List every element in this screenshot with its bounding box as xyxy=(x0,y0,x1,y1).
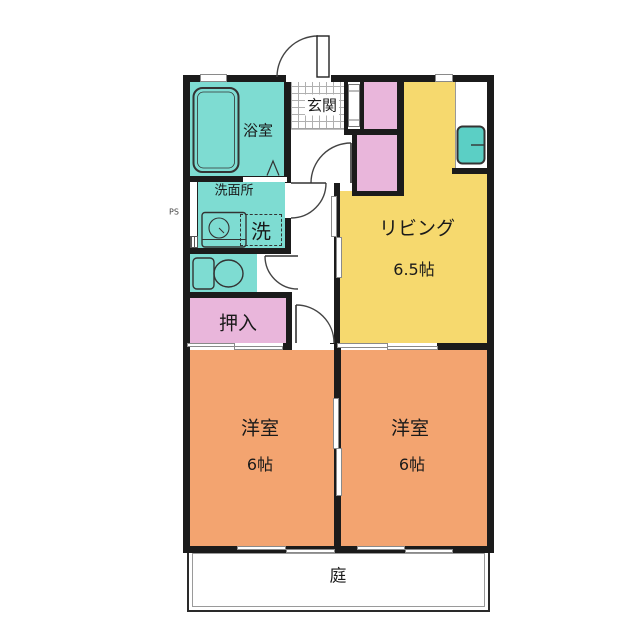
washroom-label: 洗面所 xyxy=(214,180,253,199)
bedroom-left-size-label: 6帖 xyxy=(247,451,273,475)
hall-closet-label: 押入 xyxy=(219,309,257,336)
pipe-space-label: PS xyxy=(169,208,179,217)
laundry-label: 洗 xyxy=(251,216,271,245)
floorplan-canvas: 浴室 洗面所 洗 PS 玄関 押入 リビング 6.5帖 洋室 6帖 洋室 6帖 … xyxy=(0,0,640,640)
hall-door-swing xyxy=(311,143,351,183)
bedroom-left-door-swing xyxy=(296,305,334,343)
toilet-door-swing xyxy=(265,256,298,289)
washroom-door-swing xyxy=(291,183,326,218)
entrance-door-leaf xyxy=(317,36,329,77)
bathroom-label: 浴室 xyxy=(243,120,273,141)
living-label: リビング xyxy=(379,214,455,241)
living-size-label: 6.5帖 xyxy=(393,256,434,280)
bedroom-right-label: 洋室 xyxy=(391,414,429,441)
bedroom-left-label: 洋室 xyxy=(241,414,279,441)
washbasin-tap xyxy=(219,228,224,233)
entrance-label: 玄関 xyxy=(305,95,339,116)
bathtub-fixture xyxy=(194,88,239,172)
garden-label: 庭 xyxy=(330,562,347,587)
entrance-door-swing xyxy=(277,36,318,77)
bedroom-right-size-label: 6帖 xyxy=(399,451,425,475)
toilet-tank xyxy=(193,258,214,289)
toilet-bowl xyxy=(214,260,243,287)
bath-door-mark xyxy=(267,161,279,176)
